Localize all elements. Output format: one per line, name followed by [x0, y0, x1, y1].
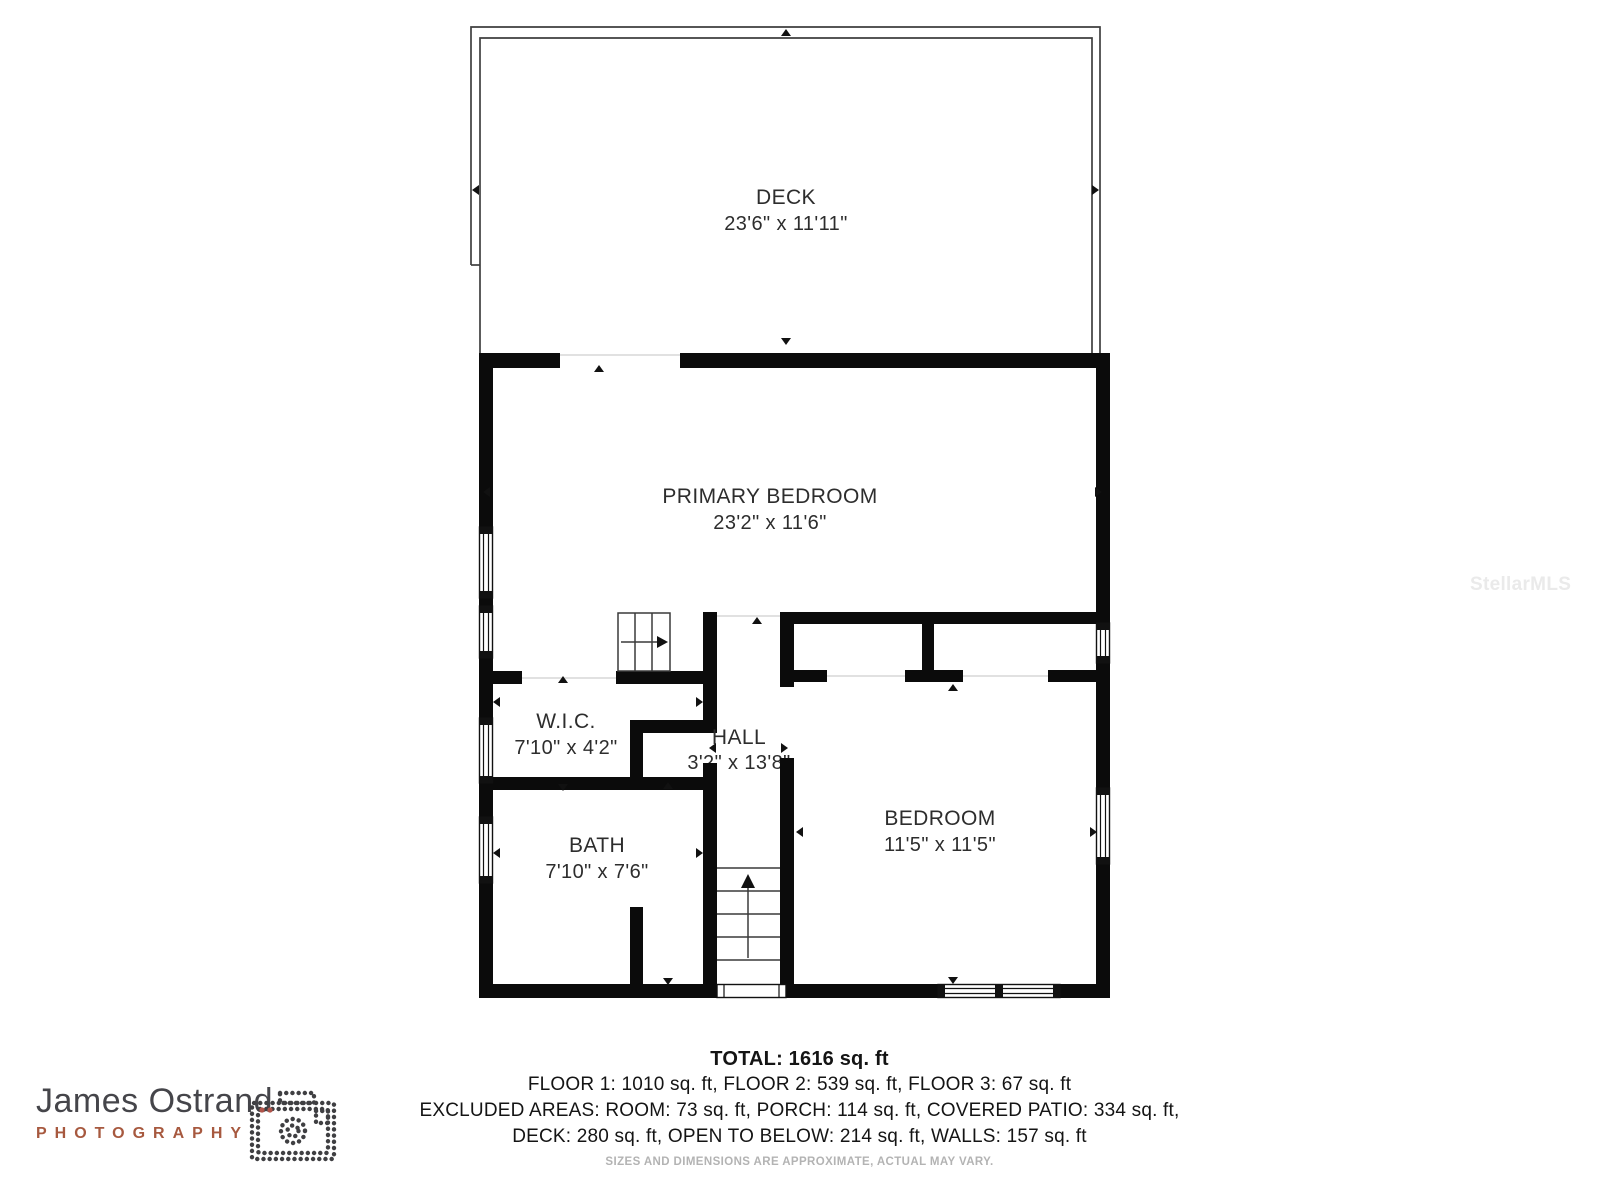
window-icon: [479, 718, 493, 783]
camera-icon: [246, 1083, 342, 1167]
wic-dims: 7'10" x 4'2": [514, 737, 617, 759]
disclaimer-text: SIZES AND DIMENSIONS ARE APPROXIMATE, AC…: [0, 1156, 1599, 1168]
window-icon: [479, 817, 493, 883]
logo-subtitle: PHOTOGRAPHY: [36, 1125, 273, 1143]
mls-watermark: StellarMLS: [1470, 574, 1571, 596]
door-icon: [717, 985, 786, 998]
window-icon: [479, 606, 493, 658]
deck-label: DECK: [756, 186, 816, 209]
hall-label: HALL: [712, 726, 766, 749]
wic-label: W.I.C.: [536, 710, 596, 733]
bedroom-label: BEDROOM: [884, 807, 995, 830]
floor-plan-canvas: 3'2" x 13'8": [0, 0, 1599, 1199]
window-icon: [1096, 623, 1110, 663]
bath-label: BATH: [569, 834, 625, 857]
primary-bedroom-label: PRIMARY BEDROOM: [662, 485, 877, 508]
logo-name: James Ostrand: [36, 1082, 273, 1121]
bath-dims: 7'10" x 7'6": [545, 861, 648, 883]
window-icon: [479, 527, 493, 598]
total-area: TOTAL: 1616 sq. ft: [0, 1048, 1599, 1071]
stairs-up-icon: [618, 613, 670, 671]
hall-dims: 3'2" x 13'8": [687, 752, 790, 774]
primary-bedroom-dims: 23'2" x 11'6": [713, 512, 826, 534]
windows: [479, 527, 1110, 998]
window-icon: [938, 984, 1060, 998]
stairs-down-icon: [717, 868, 780, 960]
deck-dims: 23'6" x 11'11": [724, 213, 847, 235]
bedroom-dims: 11'5" x 11'5": [884, 834, 996, 856]
floor-plan-page: 3'2" x 13'8": [0, 0, 1599, 1199]
window-icon: [1096, 788, 1110, 864]
photographer-logo: James Ostrand PHOTOGRAPHY: [36, 1082, 273, 1143]
